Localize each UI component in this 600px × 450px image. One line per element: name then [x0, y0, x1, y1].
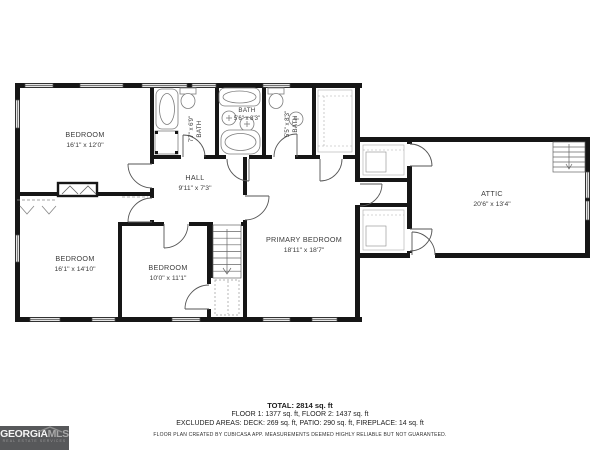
door-arc	[245, 196, 269, 220]
door-arc	[164, 224, 188, 248]
window	[192, 84, 216, 87]
wall-segment	[118, 222, 164, 226]
wardrobe-marks	[17, 200, 57, 214]
toilet-icon	[268, 88, 284, 109]
wall-segment	[15, 83, 362, 88]
door-arc	[128, 164, 152, 188]
door-arc	[410, 144, 432, 166]
wall-segment	[15, 192, 58, 196]
door-arc	[360, 184, 382, 206]
doors	[128, 134, 435, 309]
window	[172, 318, 200, 321]
window	[16, 100, 19, 128]
georgia-mls-logo: GEORGIAMLS REAL ESTATE SERVICES	[0, 426, 69, 450]
wall-segment	[207, 222, 211, 284]
wall-segment	[150, 188, 154, 198]
door-arc	[320, 159, 342, 181]
room-dims: 7'7" x 6'9"	[189, 116, 195, 142]
wall-segment	[360, 137, 590, 142]
floor-areas-text: FLOOR 1: 1377 sq. ft, FLOOR 2: 1437 sq. …	[0, 410, 600, 419]
bathtub-icon	[219, 88, 260, 106]
closet-shelving	[363, 145, 404, 175]
wall-segment	[204, 155, 226, 159]
fireplace-bay	[58, 183, 97, 196]
room-label: BEDROOM	[148, 263, 187, 272]
wall-segment	[262, 83, 266, 155]
window	[142, 84, 187, 87]
room-label: ATTIC	[481, 189, 503, 198]
room-dims: 5'5" x 8'3"	[285, 111, 291, 137]
bathtub-icon	[221, 130, 260, 154]
room-label: BATH	[238, 107, 255, 114]
wall-segment	[295, 155, 320, 159]
room-dims: 16'1" x 12'0"	[66, 142, 104, 149]
wall-segment	[97, 192, 150, 196]
wall-segment	[249, 155, 272, 159]
room-label: PRIMARY BEDROOM	[266, 235, 342, 244]
window	[263, 318, 290, 321]
window	[586, 172, 589, 198]
window	[312, 318, 337, 321]
wall-segment	[118, 222, 122, 317]
room-dims: 10'0" x 11'1"	[150, 275, 187, 282]
window	[92, 318, 115, 321]
room-dims: 5'6" x 8'3"	[234, 116, 260, 122]
area-summary: TOTAL: 2814 sq. ft FLOOR 1: 1377 sq. ft,…	[0, 401, 600, 439]
wall-segment	[150, 83, 154, 160]
wall-segment	[360, 253, 410, 258]
room-dims: 20'6" x 13'4"	[473, 201, 511, 208]
wall-segment	[355, 205, 360, 322]
staircase-main	[213, 225, 241, 315]
staircase-attic	[553, 142, 585, 172]
window	[25, 84, 53, 87]
window	[30, 318, 60, 321]
room-dims: 18'11" x 18'7"	[284, 247, 325, 254]
shower-closet-icon	[155, 131, 178, 154]
wall-segment	[207, 309, 211, 317]
wall-segment	[150, 160, 154, 164]
room-dims: 9'11" x 7'3"	[179, 185, 213, 192]
wall-segment	[243, 157, 247, 195]
wall-segment	[355, 83, 360, 182]
roof-icon	[37, 426, 63, 433]
room-dims: 16'1" x 14'10"	[54, 266, 96, 273]
logo-tagline: REAL ESTATE SERVICES	[0, 439, 69, 444]
window	[586, 201, 589, 220]
window	[80, 84, 123, 87]
wall-segment	[215, 83, 219, 155]
room-label: BATH	[196, 120, 203, 137]
wall-segment	[360, 178, 407, 182]
room-label: BEDROOM	[55, 254, 94, 263]
total-area-text: TOTAL: 2814 sq. ft	[0, 401, 600, 410]
closet-shelving	[363, 210, 404, 250]
room-label: BEDROOM	[65, 130, 104, 139]
wall-segment	[435, 253, 590, 258]
wall-segment	[343, 155, 355, 159]
floor-plan-drawing: BEDROOM 16'1" x 12'0" BATH 7'7" x 6'9" B…	[0, 0, 600, 450]
door-arc	[185, 285, 209, 309]
bathtub-icon	[156, 89, 178, 129]
excluded-areas-text: EXCLUDED AREAS: DECK: 269 sq. ft, PATIO:…	[0, 419, 600, 428]
toilet-icon	[180, 88, 196, 109]
room-label: HALL	[185, 173, 204, 182]
wall-segment	[312, 83, 316, 155]
wall-segment	[150, 155, 181, 159]
window	[263, 84, 290, 87]
room-label: BATH	[292, 115, 299, 132]
disclaimer-text: FLOOR PLAN CREATED BY CUBICASA APP. MEAS…	[0, 432, 600, 439]
window	[16, 235, 19, 262]
closet-shelving	[318, 90, 352, 152]
wall-segment	[407, 166, 412, 229]
door-arc	[128, 198, 152, 222]
floor-plan-page: BEDROOM 16'1" x 12'0" BATH 7'7" x 6'9" B…	[0, 0, 600, 450]
wall-segment	[243, 220, 247, 322]
